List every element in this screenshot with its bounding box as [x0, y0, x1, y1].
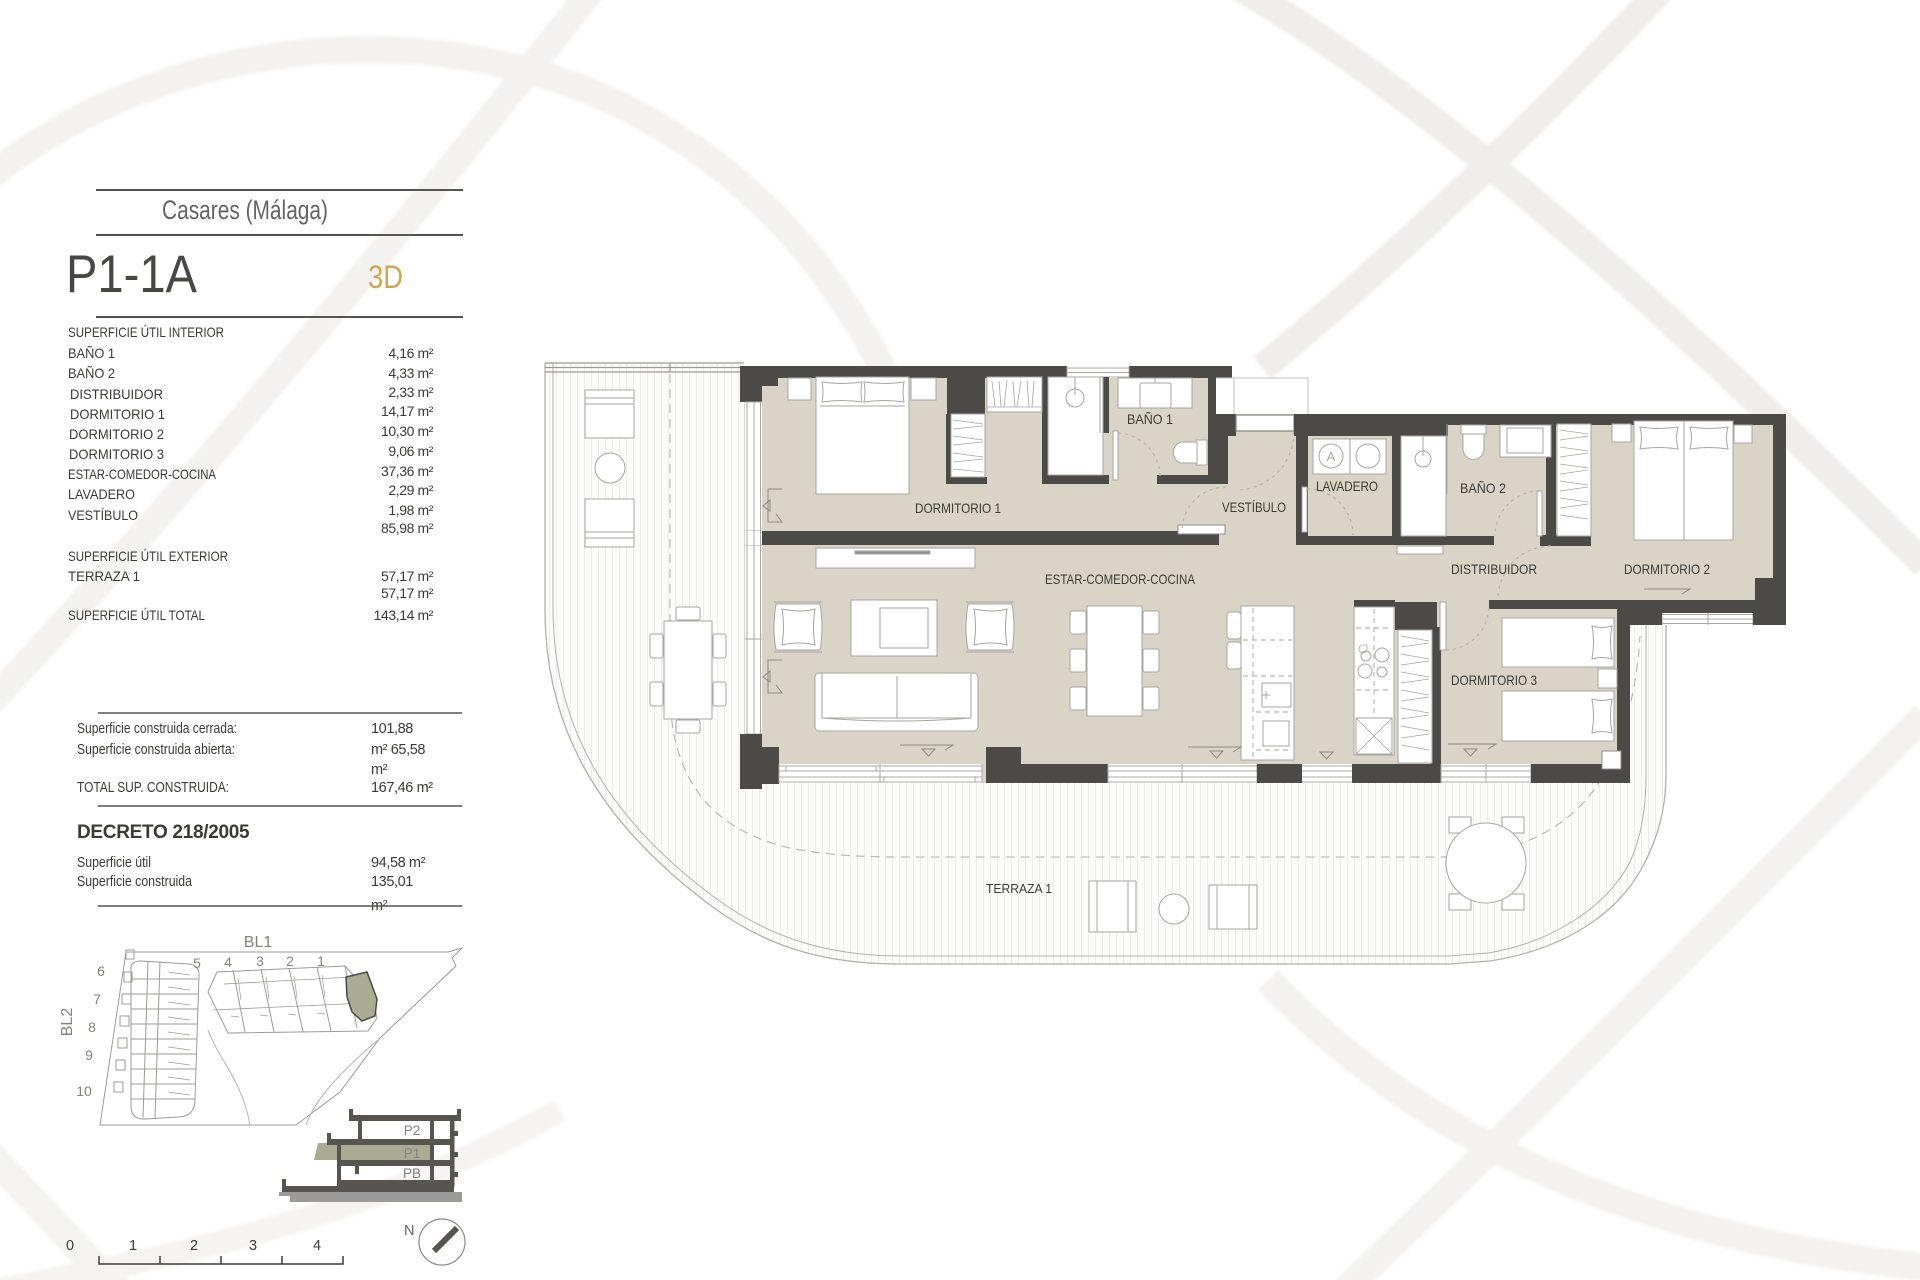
svg-text:TOTAL SUP. CONSTRUIDA:: TOTAL SUP. CONSTRUIDA: — [77, 780, 229, 796]
svg-text:8: 8 — [88, 1019, 96, 1035]
svg-text:m² 65,58: m² 65,58 — [371, 742, 425, 758]
svg-text:85,98 m²: 85,98 m² — [381, 520, 434, 536]
svg-text:BAÑO 1: BAÑO 1 — [1127, 411, 1173, 427]
svg-text:DORMITORIO 2: DORMITORIO 2 — [1624, 561, 1710, 577]
svg-text:101,88: 101,88 — [371, 721, 413, 737]
svg-text:BL2: BL2 — [59, 1008, 76, 1037]
svg-text:4: 4 — [313, 1238, 321, 1254]
svg-text:10: 10 — [76, 1083, 92, 1099]
svg-text:1,98 m²: 1,98 m² — [388, 502, 433, 518]
svg-text:BAÑO 2: BAÑO 2 — [1460, 480, 1506, 496]
svg-text:BL1: BL1 — [244, 934, 273, 951]
svg-text:37,36 m²: 37,36 m² — [381, 463, 434, 479]
svg-text:P2: P2 — [404, 1123, 421, 1138]
svg-text:0: 0 — [66, 1238, 74, 1254]
svg-text:ESTAR-COMEDOR-COCINA: ESTAR-COMEDOR-COCINA — [68, 466, 217, 482]
svg-text:m²: m² — [371, 762, 388, 778]
svg-text:2,29 m²: 2,29 m² — [388, 482, 433, 498]
svg-text:DORMITORIO 3: DORMITORIO 3 — [69, 446, 164, 462]
svg-text:3: 3 — [256, 953, 264, 969]
svg-text:BAÑO 1: BAÑO 1 — [68, 345, 115, 361]
svg-text:SUPERFICIE ÚTIL TOTAL: SUPERFICIE ÚTIL TOTAL — [68, 607, 205, 623]
svg-text:5: 5 — [193, 955, 201, 971]
svg-text:DECRETO 218/2005: DECRETO 218/2005 — [77, 822, 250, 843]
svg-text:2: 2 — [190, 1238, 198, 1254]
svg-text:4,33 m²: 4,33 m² — [388, 365, 433, 381]
svg-text:1: 1 — [129, 1238, 137, 1254]
svg-text:Superficie construida: Superficie construida — [77, 874, 193, 890]
svg-text:57,17 m²: 57,17 m² — [381, 568, 434, 584]
svg-text:DORMITORIO 2: DORMITORIO 2 — [69, 426, 164, 442]
svg-text:P1: P1 — [404, 1146, 421, 1161]
svg-text:DORMITORIO 1: DORMITORIO 1 — [915, 500, 1001, 516]
svg-text:7: 7 — [93, 991, 101, 1007]
svg-text:DORMITORIO 1: DORMITORIO 1 — [70, 406, 165, 422]
svg-text:57,17 m²: 57,17 m² — [381, 585, 434, 601]
svg-text:14,17 m²: 14,17 m² — [381, 403, 434, 419]
svg-text:Superficie construida cerrada:: Superficie construida cerrada: — [77, 721, 237, 737]
svg-text:VESTÍBULO: VESTÍBULO — [1222, 499, 1286, 515]
svg-text:LAVADERO: LAVADERO — [68, 486, 135, 502]
svg-text:3D: 3D — [368, 259, 403, 295]
svg-text:9,06 m²: 9,06 m² — [388, 443, 433, 459]
svg-text:PB: PB — [403, 1166, 421, 1181]
svg-text:TERRAZA 1: TERRAZA 1 — [986, 881, 1052, 896]
svg-text:4,16 m²: 4,16 m² — [388, 345, 433, 361]
svg-text:ESTAR-COMEDOR-COCINA: ESTAR-COMEDOR-COCINA — [1045, 571, 1196, 587]
svg-text:167,46 m²: 167,46 m² — [371, 780, 433, 796]
svg-text:DISTRIBUIDOR: DISTRIBUIDOR — [70, 386, 163, 402]
svg-text:A: A — [1327, 449, 1336, 464]
svg-text:SUPERFICIE ÚTIL INTERIOR: SUPERFICIE ÚTIL INTERIOR — [68, 324, 224, 340]
svg-text:10,30 m²: 10,30 m² — [381, 423, 434, 439]
svg-text:3: 3 — [249, 1238, 257, 1254]
svg-text:2: 2 — [286, 953, 294, 969]
svg-text:2,33 m²: 2,33 m² — [388, 384, 433, 400]
svg-text:SUPERFICIE ÚTIL EXTERIOR: SUPERFICIE ÚTIL EXTERIOR — [68, 548, 228, 564]
svg-text:Casares (Málaga): Casares (Málaga) — [162, 195, 328, 225]
svg-text:P1-1A: P1-1A — [66, 245, 198, 304]
svg-text:94,58 m²: 94,58 m² — [371, 855, 426, 871]
svg-text:Superficie útil: Superficie útil — [77, 855, 151, 871]
svg-text:DISTRIBUIDOR: DISTRIBUIDOR — [1451, 561, 1537, 577]
svg-text:135,01: 135,01 — [371, 874, 413, 890]
svg-text:Superficie construida abierta:: Superficie construida abierta: — [77, 742, 235, 758]
svg-text:DORMITORIO 3: DORMITORIO 3 — [1451, 672, 1537, 688]
svg-text:N: N — [404, 1223, 414, 1239]
svg-text:1: 1 — [317, 953, 325, 969]
svg-text:6: 6 — [97, 963, 105, 979]
svg-text:VESTÍBULO: VESTÍBULO — [68, 507, 138, 523]
svg-text:143,14 m²: 143,14 m² — [374, 607, 434, 623]
svg-text:9: 9 — [85, 1047, 93, 1063]
svg-text:TERRAZA 1: TERRAZA 1 — [68, 568, 140, 584]
svg-text:LAVADERO: LAVADERO — [1316, 478, 1378, 494]
svg-text:4: 4 — [224, 954, 232, 970]
svg-text:BAÑO 2: BAÑO 2 — [68, 365, 115, 381]
